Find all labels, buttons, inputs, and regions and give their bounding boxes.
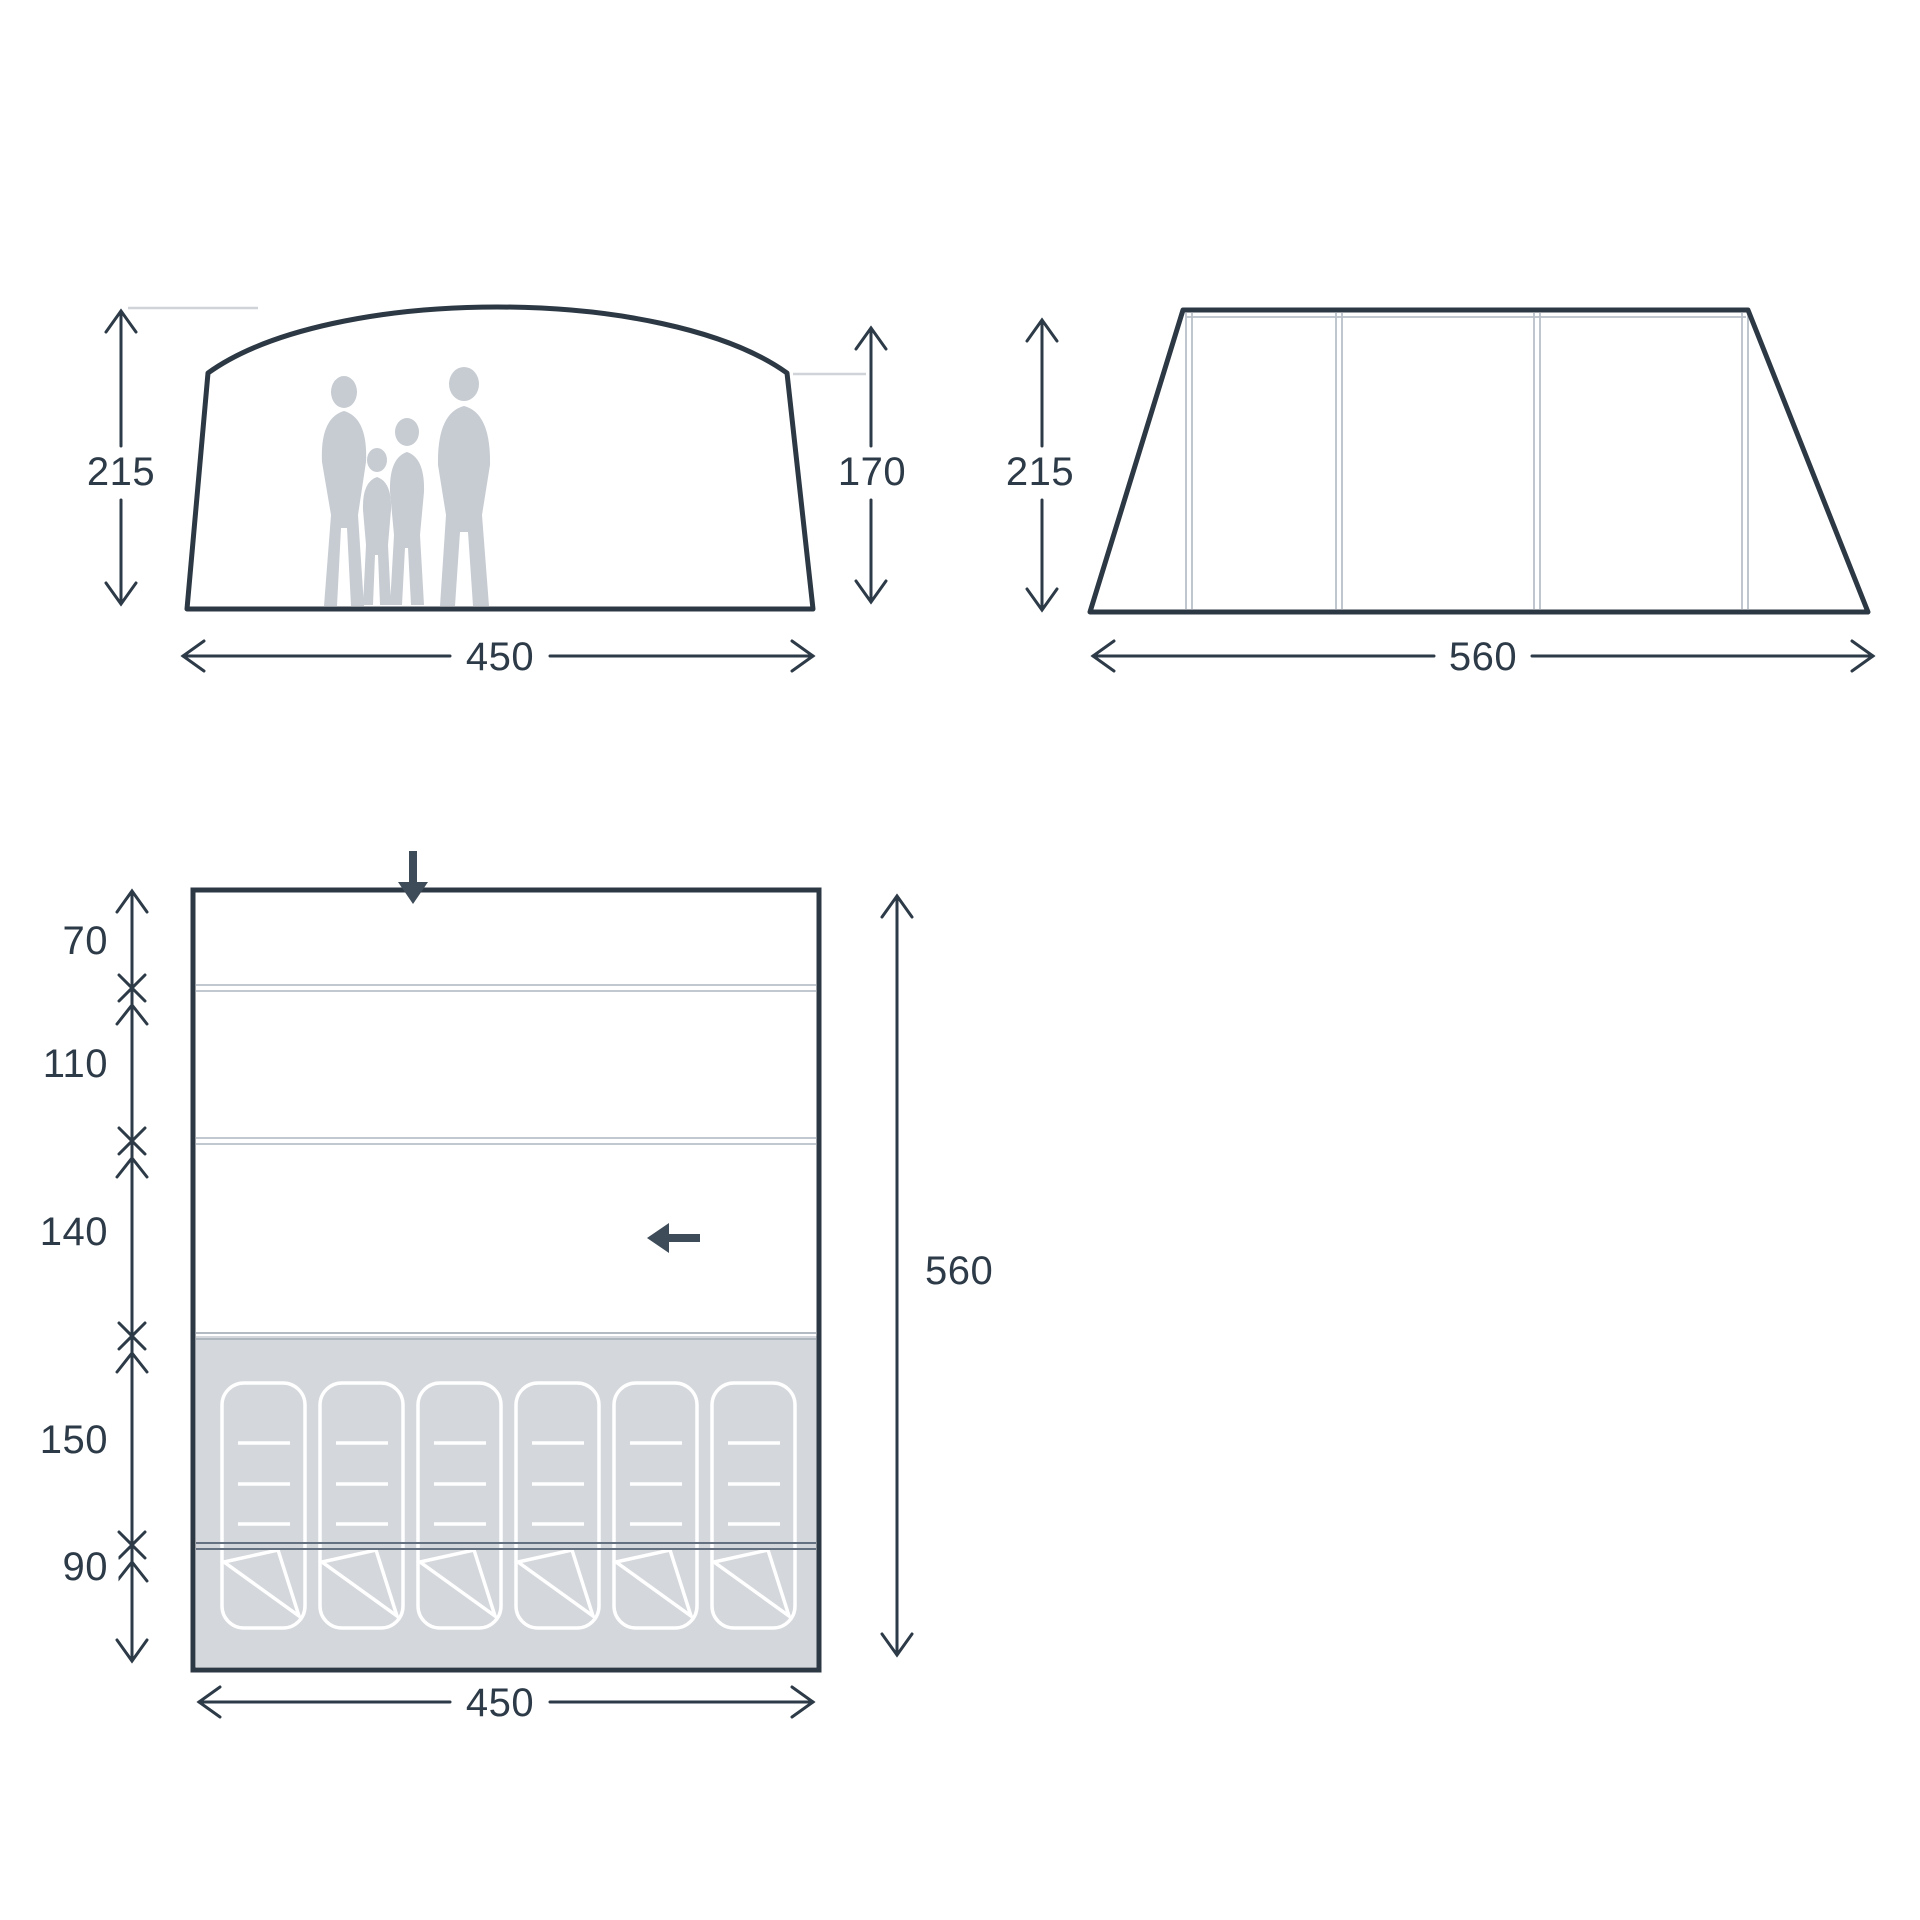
small-child-silhouette: [363, 448, 391, 605]
plan-length-label: 560: [915, 1247, 1003, 1295]
side-elevation-view: [1027, 310, 1873, 671]
diagram-linework: [0, 0, 1920, 1920]
tent-dimension-diagram: 215 170 450 215 560 70 110 140 150 90 56…: [0, 0, 1920, 1920]
plan-length-dimension-arrow: [882, 896, 912, 1655]
front-elevation-view: [106, 307, 886, 671]
boy-silhouette: [390, 418, 424, 605]
man-silhouette: [438, 367, 490, 606]
side-height-label: 215: [996, 448, 1084, 496]
room-depth-label-5: 90: [53, 1543, 119, 1591]
room-partitions-light: [196, 985, 816, 1144]
room-depth-label-1: 70: [53, 917, 119, 965]
front-tent-outline: [187, 307, 813, 609]
side-length-label: 560: [1439, 633, 1527, 681]
room-depth-label-4: 150: [30, 1416, 118, 1464]
room-depth-label-3: 140: [30, 1208, 118, 1256]
plan-width-label: 450: [456, 1679, 544, 1727]
side-tent-outline: [1090, 310, 1868, 612]
pole-seams: [1186, 313, 1748, 609]
room-depth-dimension-column: [117, 891, 147, 1661]
room-depth-label-2: 110: [33, 1040, 118, 1088]
front-wall-height-label: 170: [828, 448, 916, 496]
family-silhouette: [322, 367, 490, 606]
front-width-label: 450: [456, 633, 544, 681]
floor-plan-view: [117, 851, 912, 1717]
side-entrance-arrow-icon: [647, 1223, 700, 1253]
front-height-label: 215: [77, 448, 165, 496]
front-entrance-arrow-icon: [398, 851, 428, 904]
woman-silhouette: [322, 376, 366, 606]
